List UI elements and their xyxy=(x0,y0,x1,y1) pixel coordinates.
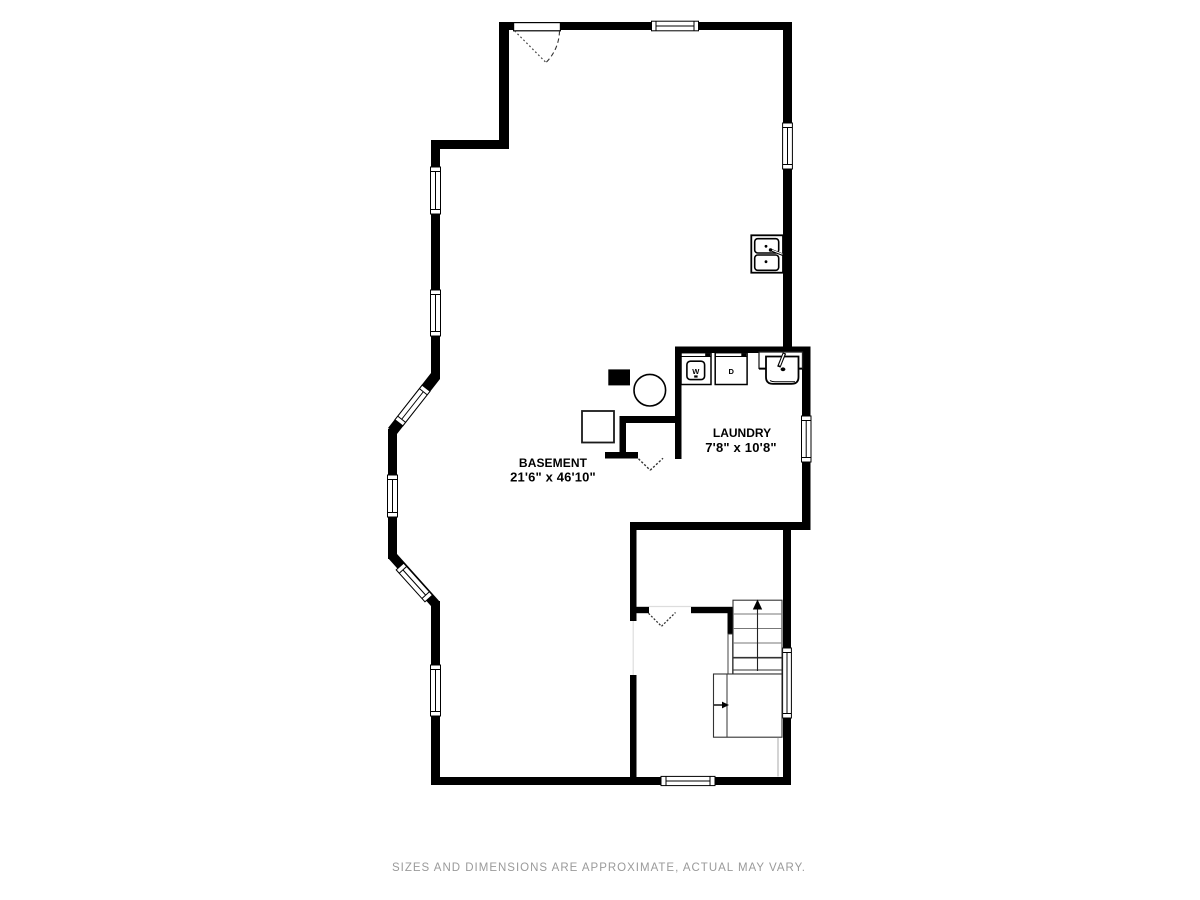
svg-text:W: W xyxy=(692,367,700,376)
svg-text:BASEMENT: BASEMENT xyxy=(519,456,588,470)
svg-text:D: D xyxy=(728,367,734,376)
svg-text:SIZES AND DIMENSIONS ARE APPRO: SIZES AND DIMENSIONS ARE APPROXIMATE, AC… xyxy=(392,862,806,874)
svg-text:21'6" x 46'10": 21'6" x 46'10" xyxy=(510,470,596,485)
svg-text:LAUNDRY: LAUNDRY xyxy=(713,426,771,440)
svg-text:7'8" x 10'8": 7'8" x 10'8" xyxy=(705,440,777,455)
